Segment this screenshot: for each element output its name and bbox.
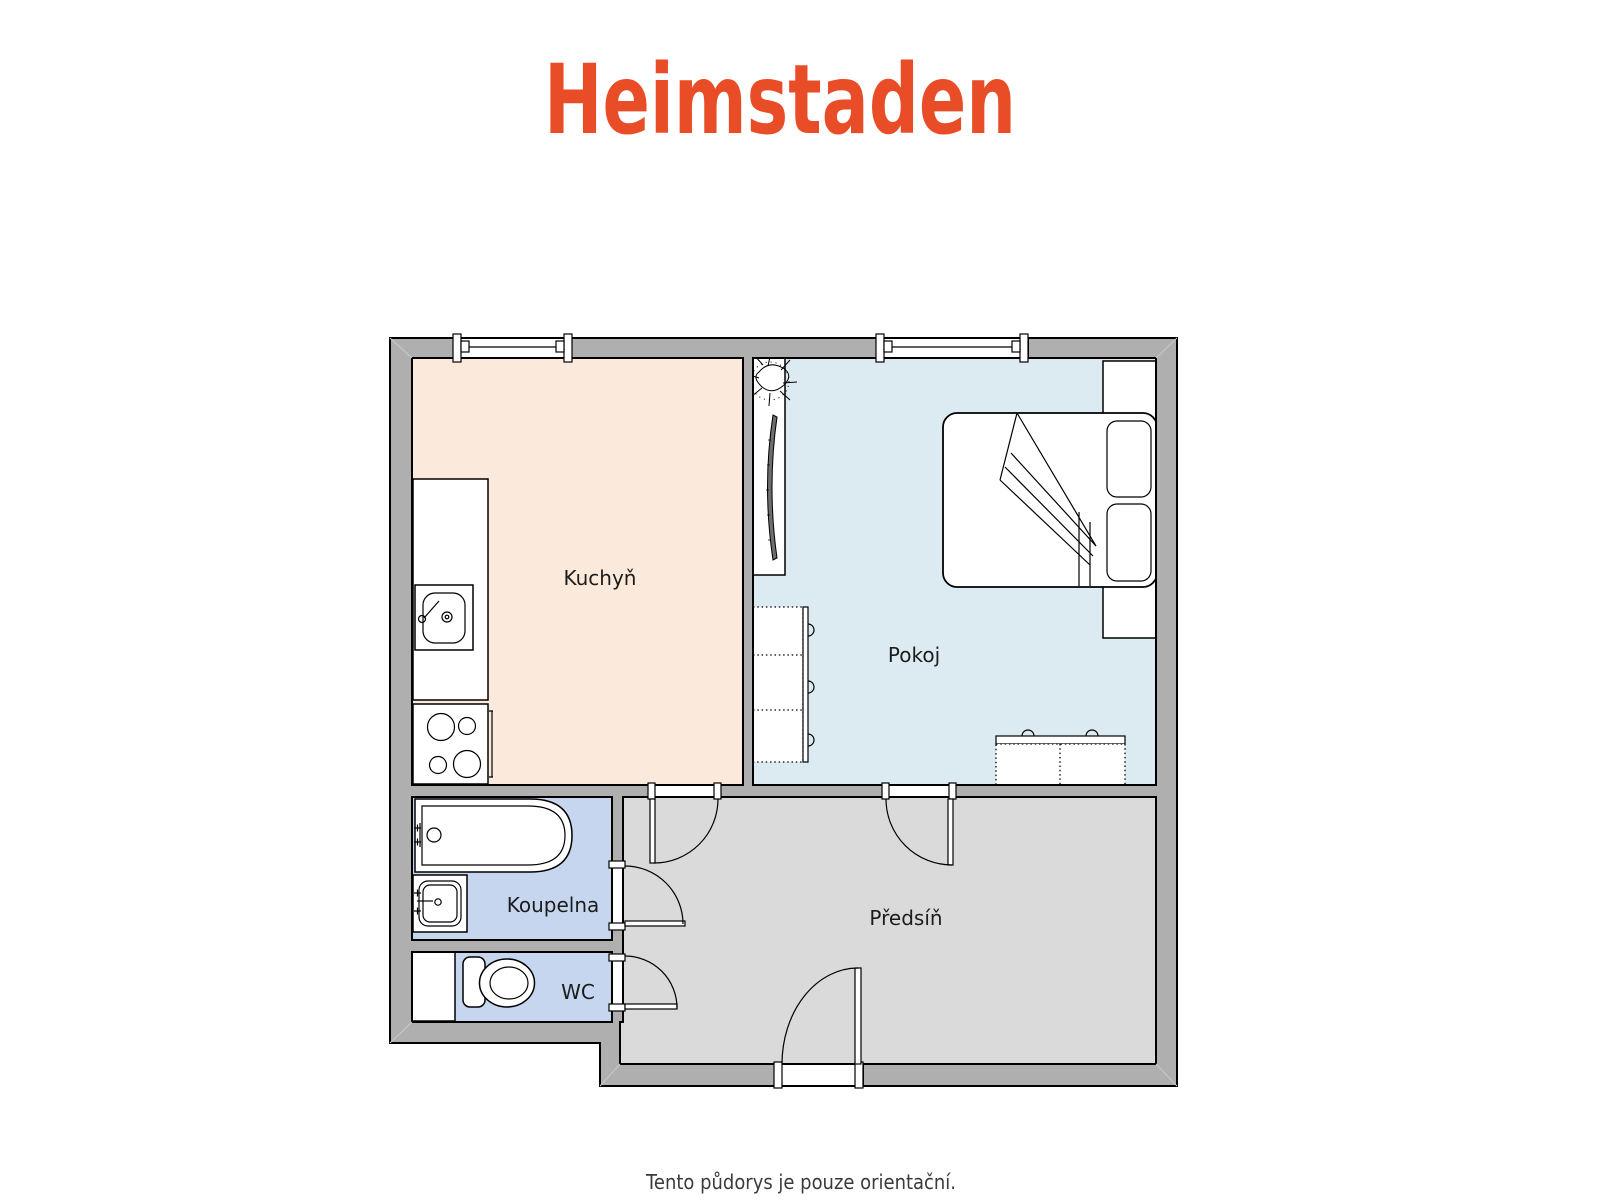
shaft [412,949,455,1021]
toilet-icon [463,957,535,1007]
wardrobe-icon [753,607,814,762]
floorplan-canvas: Heimstaden [0,0,1600,1200]
bathtub-icon [414,799,572,872]
room-label-hallway: Předsíň [869,906,942,930]
room-label-wc: WC [561,980,595,1004]
disclaimer-text: Tento půdorys je pouze orientační. [645,1170,956,1194]
washbasin-icon [413,875,467,932]
brand-logo: Heimstaden [544,44,1016,156]
hallway-floor [620,797,1156,1064]
room-label-room: Pokoj [888,643,940,667]
stove-icon [413,704,493,784]
bed-icon [943,413,1157,587]
dresser-icon [996,730,1125,788]
kitchen-furniture [413,479,493,784]
room-label-kitchen: Kuchyň [564,566,637,590]
room-label-bathroom: Koupelna [507,893,600,917]
page: Heimstaden [0,0,1600,1200]
kitchen-sink-icon [415,585,473,650]
